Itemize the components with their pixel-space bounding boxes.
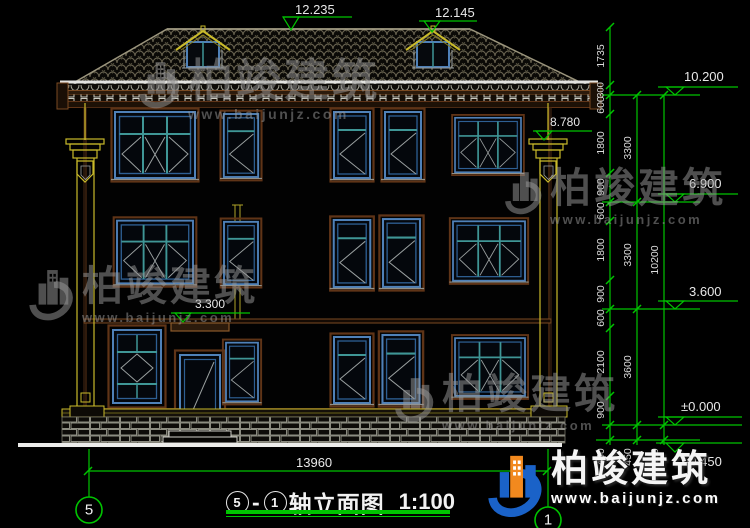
dim-seg: 600 bbox=[595, 96, 607, 114]
window-3f-wide-left bbox=[111, 109, 199, 182]
dim-floor: 450 bbox=[622, 448, 634, 466]
elev-column-top: 8.780 bbox=[550, 116, 580, 128]
dim-floor: 3300 bbox=[622, 136, 634, 159]
dim-seg: 900 bbox=[595, 285, 607, 303]
entrance-steps bbox=[163, 431, 237, 443]
dim-overall-width: 13960 bbox=[296, 456, 332, 469]
axis-bubble-5: 5 bbox=[85, 502, 93, 519]
ground-line bbox=[18, 443, 562, 447]
window-2f-wide-right bbox=[449, 218, 528, 284]
elev-ground: ±0.000 bbox=[681, 400, 721, 413]
window-1f-narrow-1 bbox=[222, 340, 261, 405]
dim-floor: 3600 bbox=[622, 355, 634, 378]
elev-eave-top: 10.200 bbox=[684, 70, 724, 83]
window-2f-wide-left bbox=[113, 217, 197, 286]
string-course bbox=[84, 319, 551, 323]
dim-total: 10200 bbox=[649, 245, 661, 274]
cad-elevation-canvas: 12.235 12.145 8.780 3.300 10.200 6.900 3… bbox=[0, 0, 750, 528]
dim-seg: 600 bbox=[595, 202, 607, 220]
dim-seg: 1800 bbox=[595, 131, 607, 154]
dim-seg: 450 bbox=[595, 448, 607, 466]
dim-seg: 600 bbox=[595, 309, 607, 327]
elev-dormer-ridge: 12.145 bbox=[435, 6, 475, 19]
window-3f-narrow-1 bbox=[220, 111, 262, 181]
window-2f-narrow-2 bbox=[330, 216, 375, 290]
dim-floor: 3300 bbox=[622, 243, 634, 266]
window-3f-narrow-2 bbox=[330, 109, 374, 182]
window-3f-wide-right bbox=[452, 115, 525, 175]
axis-bubble-1: 1 bbox=[544, 512, 552, 528]
title-underline bbox=[226, 510, 450, 514]
dim-seg: 900 bbox=[595, 401, 607, 419]
window-1f-diamond bbox=[109, 326, 166, 408]
elev-floor2: 3.600 bbox=[689, 285, 722, 298]
window-2f-narrow-3 bbox=[379, 215, 424, 290]
dim-seg: 1800 bbox=[595, 238, 607, 261]
stone-base bbox=[62, 417, 565, 443]
elev-ridge: 12.235 bbox=[295, 3, 335, 16]
title-underline-thin bbox=[226, 516, 450, 517]
eave-cornice bbox=[57, 81, 601, 110]
elev-below-ground: -0.450 bbox=[685, 455, 722, 468]
dim-seg: 1735 bbox=[595, 44, 607, 67]
window-1f-wide-right bbox=[452, 335, 529, 399]
elev-floor3: 6.900 bbox=[689, 177, 722, 190]
door-canopy bbox=[171, 323, 229, 331]
roof bbox=[68, 29, 588, 86]
window-2f-narrow-1 bbox=[220, 219, 262, 288]
window-3f-narrow-3 bbox=[381, 109, 425, 182]
elevation-drawing bbox=[0, 0, 750, 528]
window-1f-narrow-2 bbox=[330, 334, 374, 407]
window-1f-narrow-3 bbox=[378, 331, 423, 406]
dim-seg: 900 bbox=[595, 178, 607, 196]
dim-total: 450 bbox=[649, 448, 661, 466]
dim-seg: 2100 bbox=[595, 350, 607, 373]
elev-canopy: 3.300 bbox=[195, 298, 225, 310]
